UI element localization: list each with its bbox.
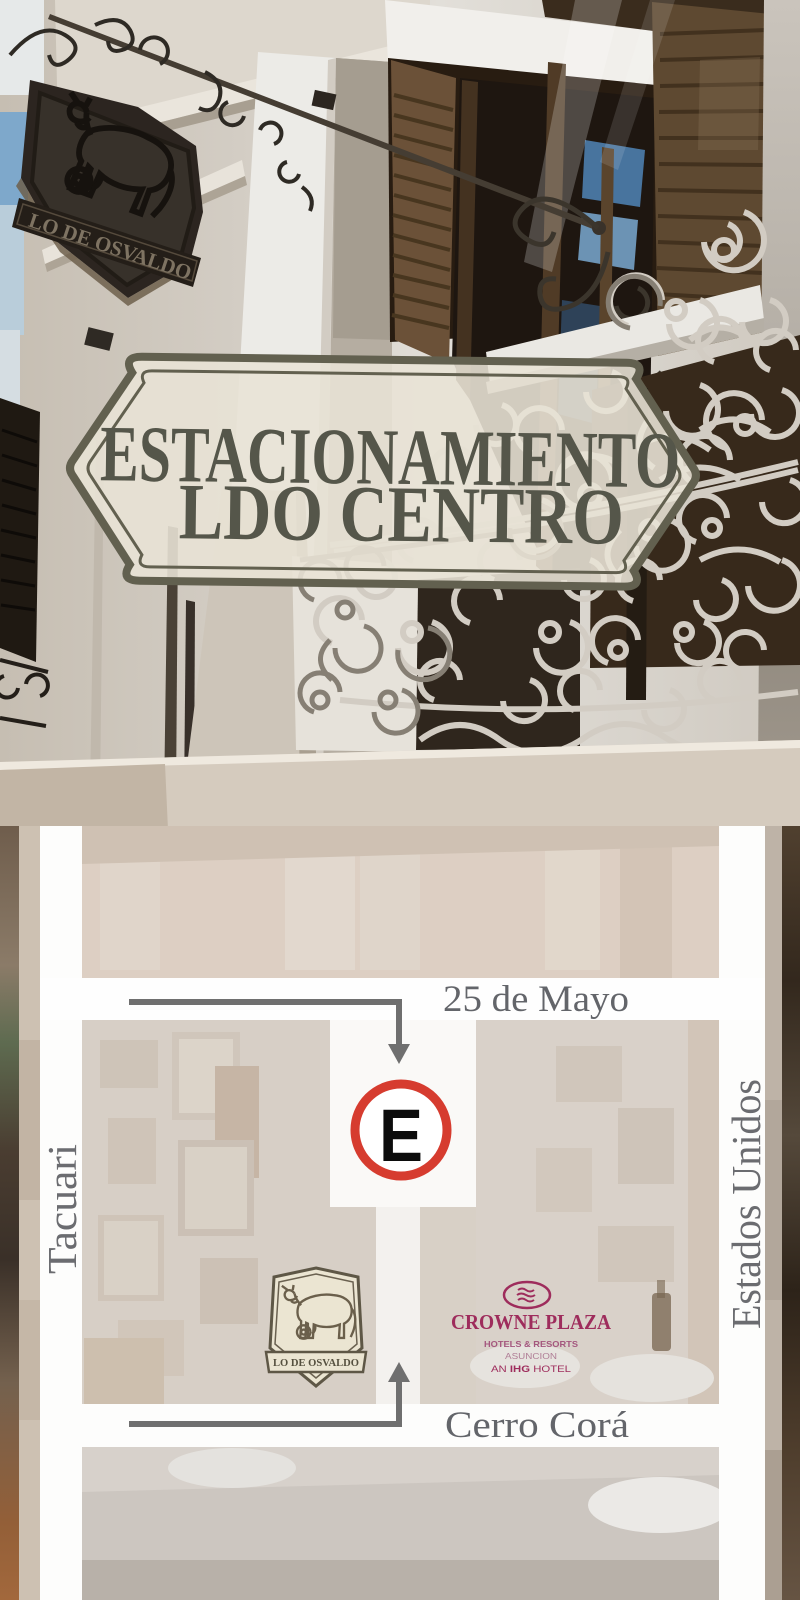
svg-text:Estados Unidos: Estados Unidos	[723, 1079, 769, 1329]
svg-text:Tacuari: Tacuari	[39, 1144, 85, 1274]
svg-text:25 de Mayo: 25 de Mayo	[443, 979, 629, 1020]
svg-text:LDO CENTRO: LDO CENTRO	[178, 468, 624, 561]
svg-text:ASUNCION: ASUNCION	[505, 1351, 557, 1361]
svg-text:HOTELS & RESORTS: HOTELS & RESORTS	[484, 1339, 578, 1349]
svg-text:Cerro Corá: Cerro Corá	[445, 1405, 629, 1446]
svg-text:LO DE OSVALDO: LO DE OSVALDO	[273, 1358, 359, 1369]
svg-text:AN IHG HOTEL: AN IHG HOTEL	[491, 1364, 571, 1374]
svg-text:E: E	[379, 1094, 423, 1177]
svg-text:CROWNE PLAZA: CROWNE PLAZA	[451, 1310, 612, 1334]
